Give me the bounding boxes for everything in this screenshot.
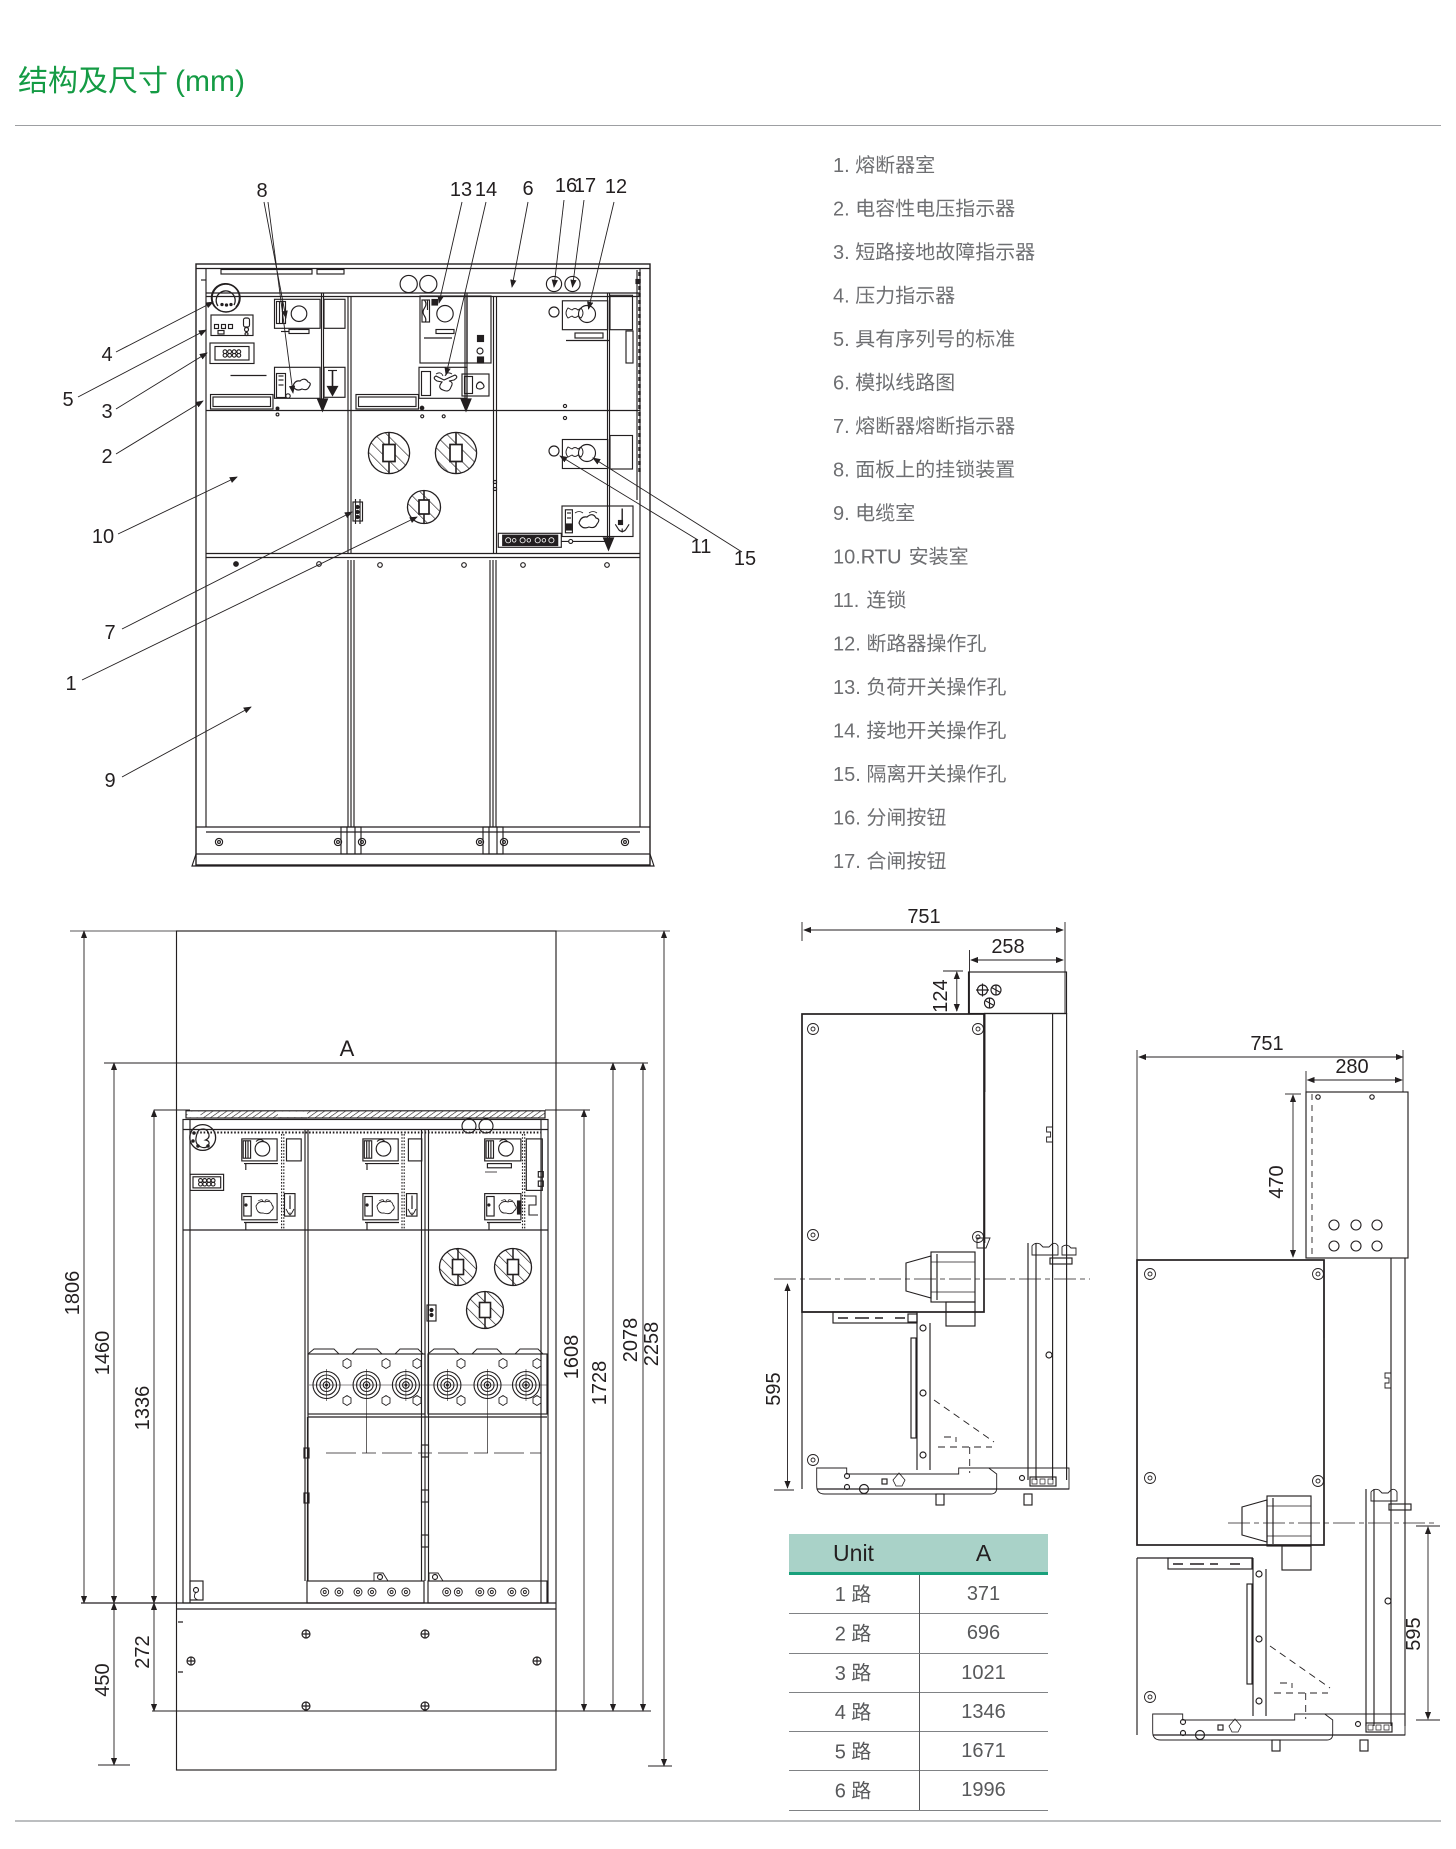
svg-text:124: 124 bbox=[930, 979, 952, 1012]
svg-text:1608: 1608 bbox=[561, 1335, 583, 1380]
svg-text:A: A bbox=[340, 1036, 355, 1061]
svg-text:11.: 11. bbox=[833, 590, 859, 612]
svg-text:751: 751 bbox=[907, 906, 940, 928]
svg-text:1336: 1336 bbox=[132, 1386, 154, 1431]
svg-text:258: 258 bbox=[991, 936, 1024, 958]
svg-text:8: 8 bbox=[256, 180, 267, 202]
svg-text:17: 17 bbox=[574, 175, 596, 197]
svg-text:6: 6 bbox=[522, 178, 533, 200]
svg-text:595: 595 bbox=[1403, 1617, 1425, 1650]
svg-text:4.: 4. bbox=[833, 286, 850, 308]
svg-text:17.: 17. bbox=[833, 851, 861, 873]
svg-text:11: 11 bbox=[691, 536, 712, 558]
svg-text:272: 272 bbox=[132, 1635, 154, 1668]
svg-text:9.: 9. bbox=[833, 503, 850, 525]
svg-text:4: 4 bbox=[101, 344, 112, 366]
svg-text:13: 13 bbox=[450, 179, 472, 201]
svg-text:15: 15 bbox=[734, 548, 756, 570]
svg-text:1460: 1460 bbox=[92, 1331, 114, 1376]
svg-text:595: 595 bbox=[763, 1372, 785, 1405]
svg-text:2.: 2. bbox=[833, 199, 850, 221]
svg-text:16.: 16. bbox=[833, 808, 861, 830]
svg-text:(mm): (mm) bbox=[175, 65, 245, 98]
svg-text:450: 450 bbox=[92, 1663, 114, 1696]
svg-text:1806: 1806 bbox=[62, 1271, 84, 1316]
svg-text:2258: 2258 bbox=[641, 1322, 663, 1367]
svg-text:7.: 7. bbox=[833, 416, 850, 438]
svg-text:15.: 15. bbox=[833, 764, 861, 786]
svg-text:RTU: RTU bbox=[861, 547, 902, 569]
svg-text:3.: 3. bbox=[833, 242, 850, 264]
svg-text:13.: 13. bbox=[833, 677, 861, 699]
svg-text:2078: 2078 bbox=[620, 1318, 642, 1363]
svg-text:1.: 1. bbox=[833, 155, 850, 177]
svg-text:470: 470 bbox=[1266, 1165, 1288, 1198]
svg-text:1728: 1728 bbox=[589, 1361, 611, 1406]
svg-text:1: 1 bbox=[65, 673, 76, 695]
svg-text:5.: 5. bbox=[833, 329, 850, 351]
svg-text:5: 5 bbox=[62, 389, 73, 411]
svg-text:751: 751 bbox=[1250, 1033, 1283, 1055]
svg-text:12: 12 bbox=[605, 176, 627, 198]
svg-text:8.: 8. bbox=[833, 460, 850, 482]
svg-text:12.: 12. bbox=[833, 634, 861, 656]
svg-text:14.: 14. bbox=[833, 721, 861, 743]
svg-text:6.: 6. bbox=[833, 373, 850, 395]
svg-text:10: 10 bbox=[92, 526, 114, 548]
svg-text:280: 280 bbox=[1335, 1056, 1368, 1078]
svg-text:14: 14 bbox=[475, 179, 497, 201]
svg-text:3: 3 bbox=[101, 401, 112, 423]
svg-text:9: 9 bbox=[104, 770, 115, 792]
svg-text:7: 7 bbox=[104, 622, 115, 644]
svg-text:2: 2 bbox=[101, 446, 112, 468]
